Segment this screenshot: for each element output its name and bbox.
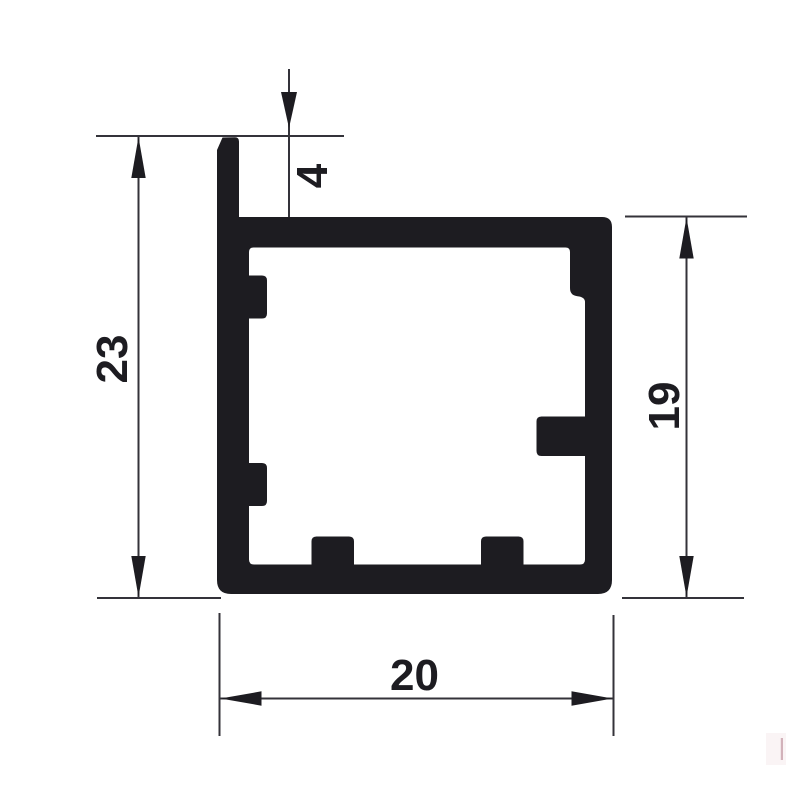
svg-text:20: 20 [390,651,439,700]
svg-text:23: 23 [88,335,137,384]
svg-text:4: 4 [288,163,337,188]
svg-text:19: 19 [640,382,689,431]
